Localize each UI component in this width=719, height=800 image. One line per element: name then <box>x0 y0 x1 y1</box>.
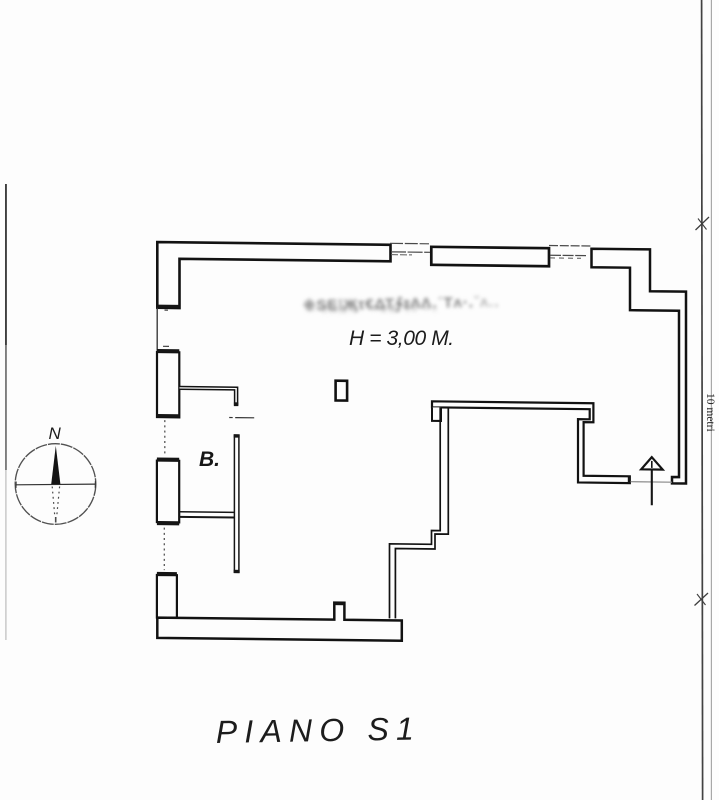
svg-text:N: N <box>49 424 62 443</box>
svg-text:H = 3,00 M.: H = 3,00 M. <box>349 327 454 350</box>
svg-text:PIANO S1: PIANO S1 <box>215 710 421 750</box>
svg-text:10 metri: 10 metri <box>704 393 716 432</box>
svg-text:B.: B. <box>199 448 220 471</box>
